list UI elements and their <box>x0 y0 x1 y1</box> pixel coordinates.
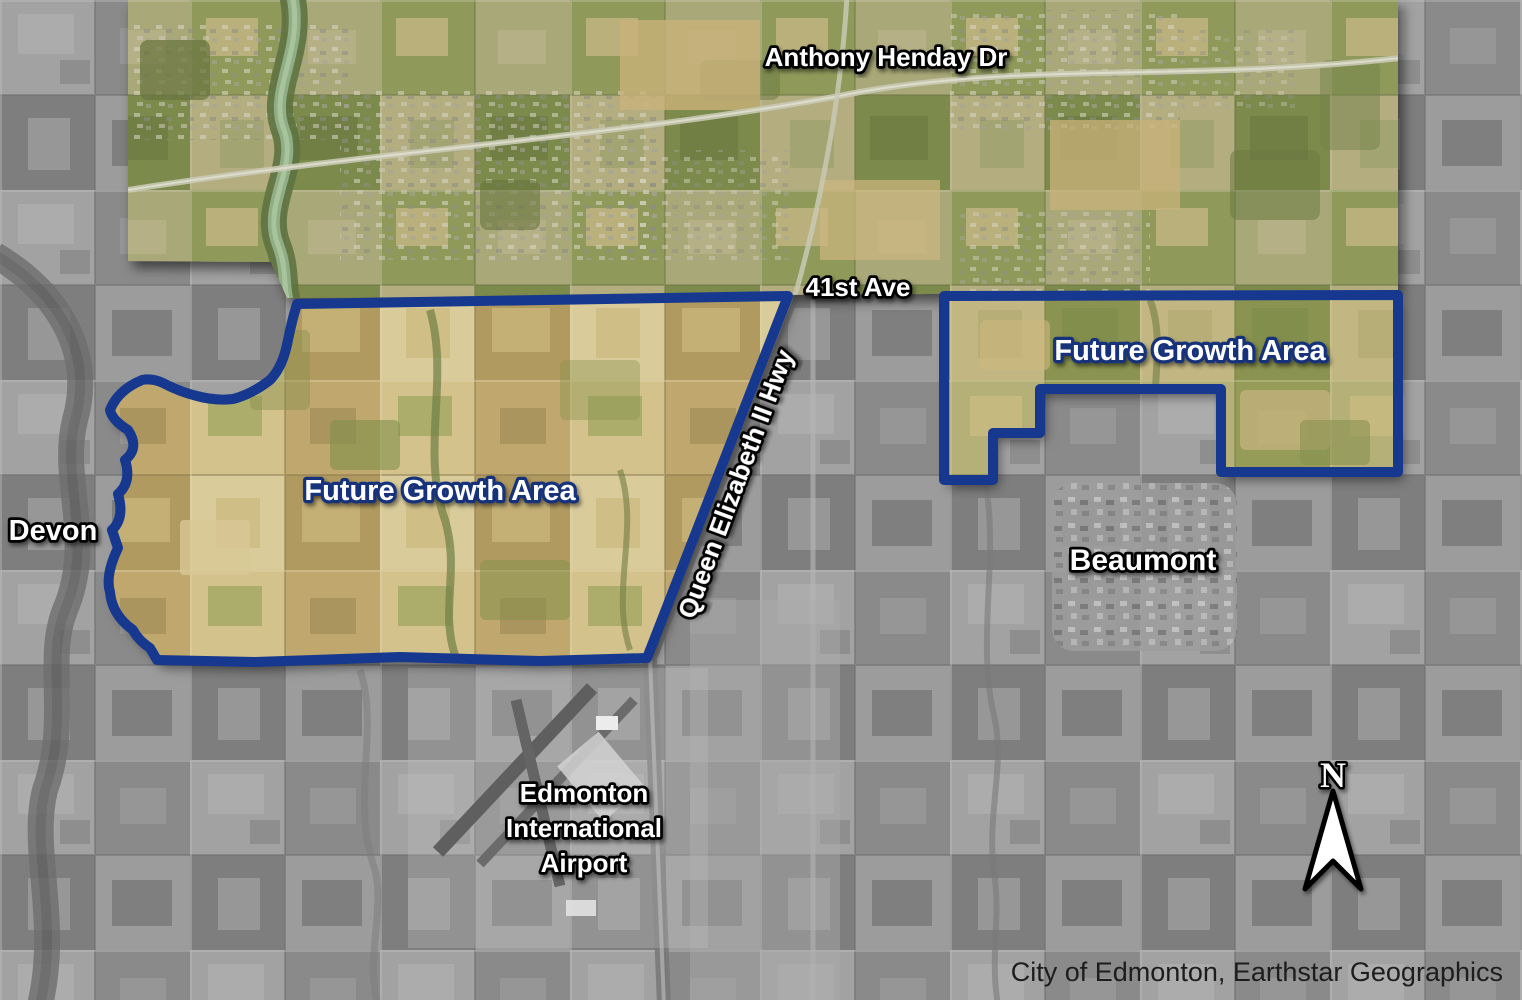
label-future-growth-area-west: Future Growth Area <box>304 475 576 507</box>
svg-text:Edmonton: Edmonton <box>520 778 649 808</box>
airport-runways <box>408 668 708 948</box>
label-devon: Devon <box>9 515 98 547</box>
svg-text:International: International <box>506 813 662 843</box>
map-viewport: Anthony Henday Dr 41st Ave Future Growth… <box>0 0 1522 1000</box>
label-beaumont: Beaumont <box>1070 544 1217 577</box>
label-anthony-henday-dr: Anthony Henday Dr <box>765 42 1008 72</box>
label-41st-ave: 41st Ave <box>805 272 910 302</box>
map-canvas: Anthony Henday Dr 41st Ave Future Growth… <box>0 0 1522 1000</box>
svg-text:Airport: Airport <box>541 848 628 878</box>
attribution-text: City of Edmonton, Earthstar Geographics <box>1011 957 1503 987</box>
industrial-strip <box>690 600 840 1000</box>
label-future-growth-area-east: Future Growth Area <box>1054 335 1326 367</box>
